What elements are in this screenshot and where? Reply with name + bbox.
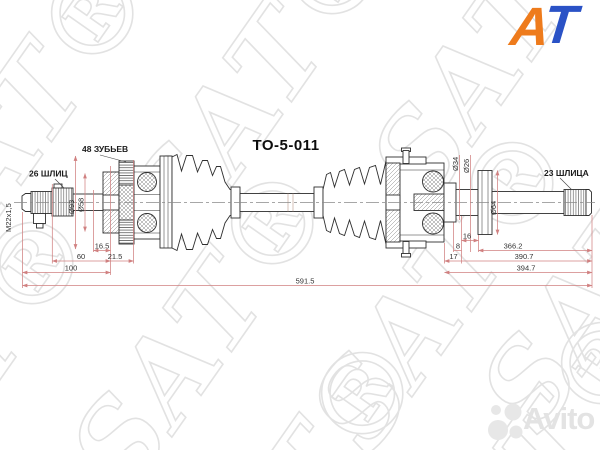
brand-logo-at: A T [508,0,599,52]
dim-100: 100 [65,264,78,273]
cotter-pin [37,224,44,229]
tripod-roller-top [423,171,444,192]
dim-8: 8 [456,242,460,251]
outer-cv-housing [103,156,172,248]
left-boot-clamp-large [160,156,172,248]
part-number: TO-5-011 [252,137,319,154]
label-splines-left: 26 ШЛИЦ [29,169,68,179]
label-thread-spec: M22x1,5 [4,203,13,232]
product-image: SAT® SAT® SAT® SAT® SAT® SAT® SAT® SAT® … [0,0,600,450]
dim-dia-26: Ø26 [462,159,471,173]
dim-17: 17 [449,252,457,261]
avito-watermark: Avito [486,397,600,445]
avito-logo-mark [486,397,526,445]
bearing-ball-top [138,173,157,192]
dim-dia-93: Ø93 [67,200,76,214]
dim-16: 16 [463,232,471,241]
tripod-roller-bottom [423,213,444,234]
dim-16-5: 16.5 [95,242,110,251]
dim-591-5: 591.5 [296,277,315,286]
dim-366-2: 366.2 [504,242,523,251]
dim-390-7: 390.7 [515,252,534,261]
stub-lock-nut [34,214,46,224]
dim-394-7: 394.7 [517,264,536,273]
dim-dia-34: Ø34 [451,157,460,171]
brand-letter-a: A [507,0,553,58]
driveshaft-diagram: TO-5-011 48 ЗУБЬЕВ 26 ШЛИЦ 23 ШЛИЦА M22x… [0,0,600,450]
inner-joint-pin-bottom [403,242,409,255]
threaded-stub [22,192,52,229]
label-teeth-count: 48 ЗУБЬЕВ [82,144,128,154]
avito-logo-text: Avito [523,401,594,437]
dim-60: 60 [77,252,85,261]
dim-21-5: 21.5 [108,252,123,261]
dim-dia-64: Ø64 [489,201,498,215]
label-splines-right: 23 ШЛИЦА [544,168,589,178]
bearing-ball-bottom [138,214,157,233]
dim-dia-58: Ø58 [77,198,86,212]
